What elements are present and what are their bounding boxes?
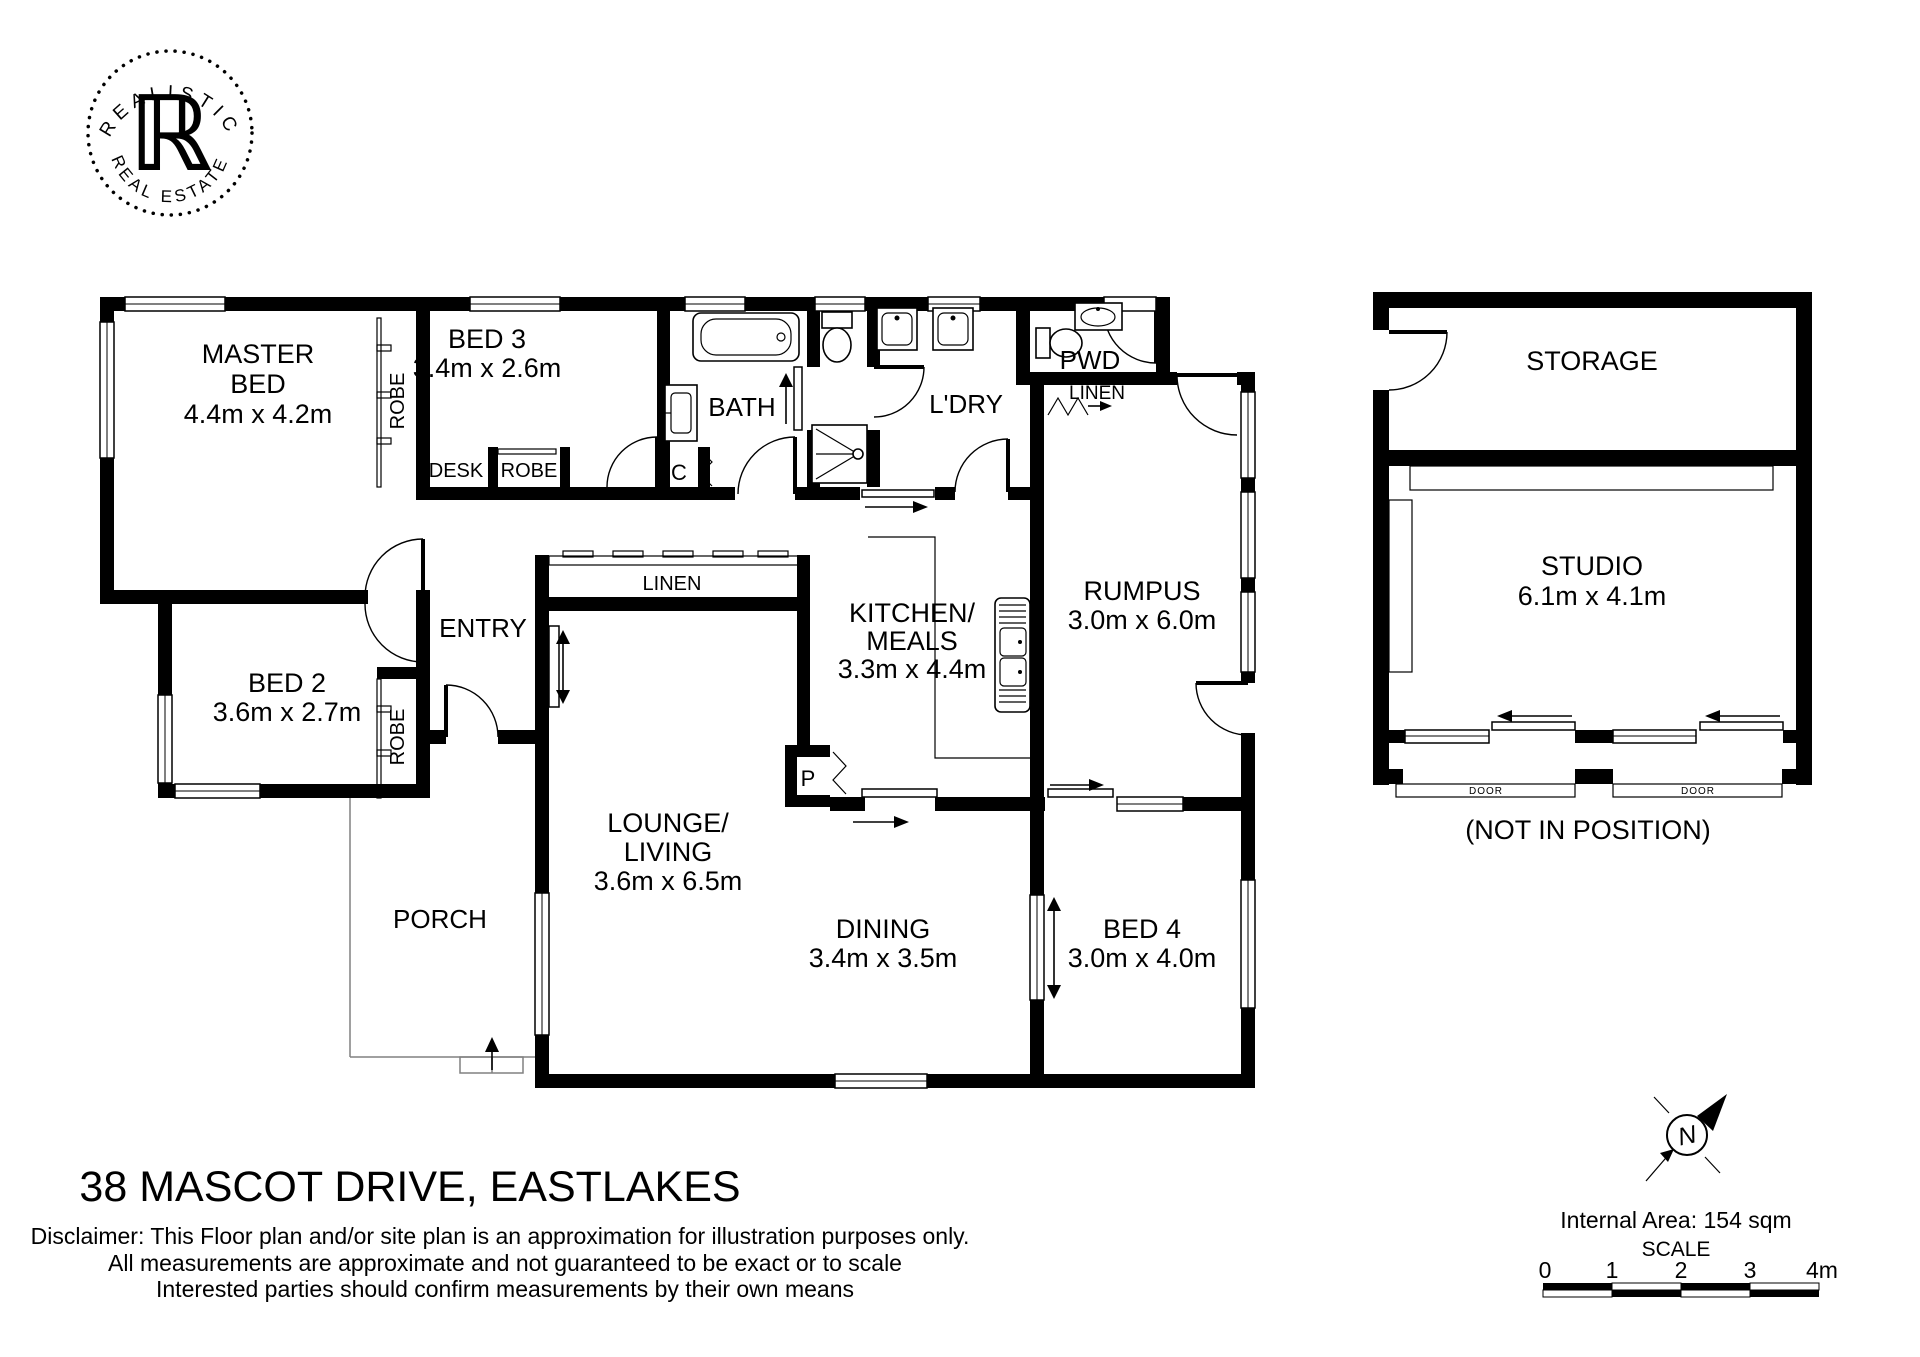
- page-title: 38 MASCOT DRIVE, EASTLAKES: [79, 1163, 740, 1211]
- wc-toilet: [822, 312, 852, 362]
- scale-bar: [1543, 1283, 1819, 1297]
- laundry-tubs: [877, 308, 973, 350]
- label-robe-bed3: ROBE: [501, 460, 558, 482]
- label-linen-hall: LINEN: [643, 573, 702, 595]
- label-bed4: BED 4: [1103, 914, 1181, 944]
- scale-tick-0: 0: [1539, 1257, 1552, 1283]
- scale-tick-1: 1: [1606, 1257, 1619, 1283]
- linen-hall-shelving: [549, 551, 798, 565]
- label-desk: DESK: [429, 460, 484, 482]
- label-door-left: DOOR: [1469, 786, 1503, 797]
- porch-step-arrow: [485, 1037, 499, 1070]
- scale-block: Internal Area: 154 sqm SCALE 0 1 2 3 4m: [1539, 1207, 1838, 1297]
- label-linen-pwd: LINEN: [1069, 383, 1125, 404]
- label-master-bed-2: BED: [230, 369, 286, 399]
- title-block: 38 MASCOT DRIVE, EASTLAKES Disclaimer: T…: [31, 1163, 970, 1302]
- label-lounge-2: LIVING: [624, 837, 713, 867]
- label-bed4-dims: 3.0m x 4.0m: [1068, 943, 1217, 973]
- studio-door: [1389, 332, 1447, 390]
- label-entry: ENTRY: [439, 613, 527, 643]
- north-compass: N: [1646, 1094, 1727, 1181]
- label-pantry: P: [801, 766, 816, 791]
- label-door-right: DOOR: [1681, 786, 1715, 797]
- label-laundry: L'DRY: [929, 389, 1003, 419]
- label-dining: DINING: [836, 914, 931, 944]
- bath-vanity: [665, 385, 697, 441]
- studio-slide-arrows: [1497, 710, 1780, 722]
- kitchen-sink: [995, 598, 1030, 712]
- scale-tick-2: 2: [1675, 1257, 1688, 1283]
- label-studio: STUDIO: [1541, 551, 1643, 581]
- label-dining-dims: 3.4m x 3.5m: [809, 943, 958, 973]
- label-kitchen-dims: 3.3m x 4.4m: [838, 654, 987, 684]
- label-kitchen-2: MEALS: [866, 626, 958, 656]
- room-labels: MASTER BED 4.4m x 4.2m BED 3 3.4m x 2.6m…: [184, 324, 1217, 973]
- label-bed2-dims: 3.6m x 2.7m: [213, 697, 362, 727]
- label-kitchen-1: KITCHEN/: [849, 598, 976, 628]
- label-closet: C: [671, 460, 687, 485]
- label-bath: BATH: [708, 392, 775, 422]
- label-bed2: BED 2: [248, 668, 326, 698]
- label-storage: STORAGE: [1526, 346, 1658, 376]
- bathtub: [693, 313, 799, 361]
- floorplan-canvas: REALISTIC REAL ESTATE ℝ: [0, 0, 1920, 1357]
- porch-outline: [350, 798, 535, 1073]
- powder-basin: [1075, 303, 1122, 330]
- logo-monogram: ℝ: [128, 73, 211, 195]
- scale-tick-4: 4m: [1806, 1257, 1838, 1283]
- scale-tick-3: 3: [1744, 1257, 1757, 1283]
- robe-bed3-front: [498, 449, 556, 454]
- disclaimer-line1: Disclaimer: This Floor plan and/or site …: [31, 1223, 970, 1249]
- disclaimer-line2: All measurements are approximate and not…: [108, 1250, 902, 1276]
- label-lounge-1: LOUNGE/: [607, 808, 729, 838]
- label-powder: PWD: [1060, 345, 1121, 375]
- pantry-bifold-door: [833, 752, 846, 794]
- label-bed3-dims: 3.4m x 2.6m: [413, 353, 562, 383]
- label-not-in-position: (NOT IN POSITION): [1465, 815, 1711, 845]
- label-porch: PORCH: [393, 904, 487, 934]
- shower: [812, 425, 867, 483]
- label-rumpus-dims: 3.0m x 6.0m: [1068, 605, 1217, 635]
- label-master-bed-1: MASTER: [202, 339, 315, 369]
- label-lounge-dims: 3.6m x 6.5m: [594, 866, 743, 896]
- label-robe-master: ROBE: [387, 373, 409, 430]
- internal-area-label: Internal Area: 154 sqm: [1560, 1207, 1791, 1233]
- label-robe-bed2: ROBE: [387, 709, 409, 766]
- disclaimer-line3: Interested parties should confirm measur…: [156, 1276, 854, 1302]
- studio-door-strips: DOOR DOOR: [1396, 784, 1782, 797]
- agency-logo: REALISTIC REAL ESTATE ℝ: [88, 51, 252, 215]
- label-studio-dims: 6.1m x 4.1m: [1518, 581, 1667, 611]
- label-bed3: BED 3: [448, 324, 526, 354]
- label-master-bed-dims: 4.4m x 4.2m: [184, 399, 333, 429]
- label-rumpus: RUMPUS: [1083, 576, 1200, 606]
